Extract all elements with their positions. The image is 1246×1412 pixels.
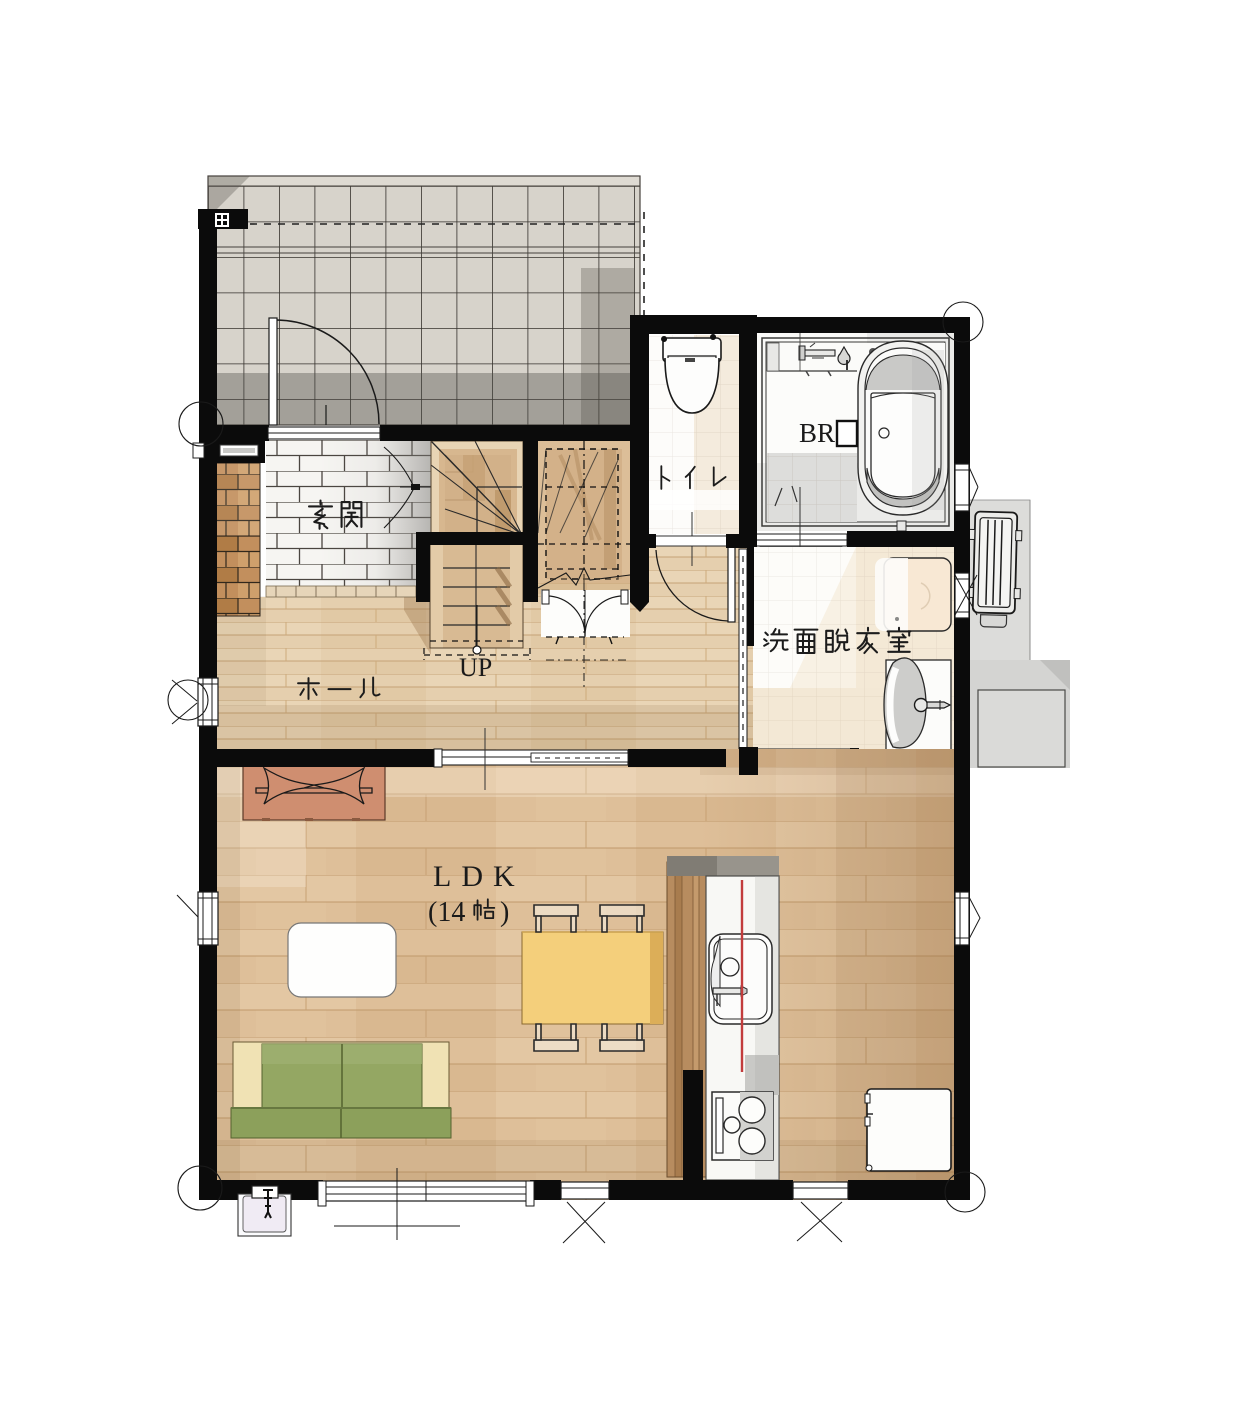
svg-text:UP: UP [459, 653, 492, 682]
svg-text:BR: BR [799, 418, 835, 448]
svg-text:): ) [500, 897, 509, 928]
svg-text:(14: (14 [428, 897, 465, 928]
svg-text:LDK: LDK [433, 860, 525, 893]
